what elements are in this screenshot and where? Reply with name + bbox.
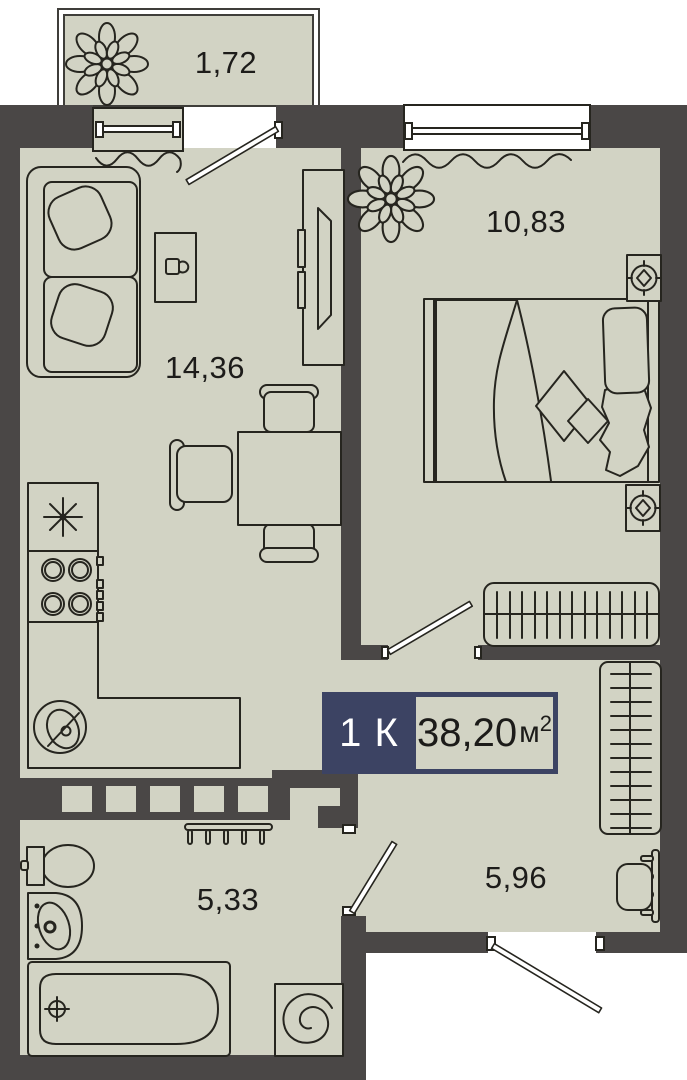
entrance-door-jamb — [595, 936, 605, 951]
balcony-window-cap — [172, 121, 181, 138]
apartment-area-value: 38,20м2 — [416, 697, 553, 769]
area-unit: м — [519, 716, 540, 750]
bedroom-window-cap — [404, 122, 413, 140]
wall-right — [660, 105, 687, 953]
wall-niche — [194, 786, 224, 812]
wall-niche — [150, 786, 180, 812]
balcony-door-jamb — [274, 121, 283, 139]
balcony-railing — [63, 14, 314, 105]
bathroom-door-jamb — [342, 824, 356, 834]
entrance-door-jamb — [486, 936, 496, 951]
wall-hall-bottom-left — [341, 932, 488, 953]
apartment-type-label: 1 К — [322, 692, 416, 774]
wall-bedroom-bottom-right — [478, 645, 660, 660]
balcony-window-glass — [100, 125, 176, 133]
bedroom-area-label: 10,83 — [486, 204, 566, 240]
bathroom-area-label: 5,33 — [197, 882, 259, 918]
wall-niche — [106, 786, 136, 812]
area-exponent: 2 — [540, 711, 552, 737]
wall-hall-bottom-right — [596, 932, 687, 953]
bedroom-window-cap — [581, 122, 590, 140]
wall-niche — [62, 786, 92, 812]
bedroom-door-jamb — [381, 646, 389, 659]
wall-living-bedroom — [341, 105, 361, 660]
hallway-area-label: 5,96 — [485, 860, 547, 896]
balcony-window-cap — [95, 121, 104, 138]
wall-niche — [238, 786, 268, 812]
balcony-area-label: 1,72 — [195, 45, 257, 81]
wall-left — [0, 105, 20, 1080]
bedroom-window-glass — [411, 127, 583, 135]
floor-bathroom — [20, 818, 341, 1055]
area-number: 38,20 — [417, 711, 517, 756]
floor-plan: 1,72 14,36 10,83 5,33 5,96 1 К 38,20м2 — [0, 0, 687, 1080]
bathroom-door-jamb — [342, 906, 356, 916]
apartment-badge: 1 К 38,20м2 — [322, 692, 558, 774]
wall-top-mid — [276, 105, 403, 148]
wall-bathroom-bottom — [0, 1055, 366, 1080]
balcony — [57, 8, 320, 107]
bedroom-door-jamb — [474, 646, 482, 659]
entrance-door-leaf — [492, 944, 602, 1013]
living-area-label: 14,36 — [165, 350, 245, 386]
